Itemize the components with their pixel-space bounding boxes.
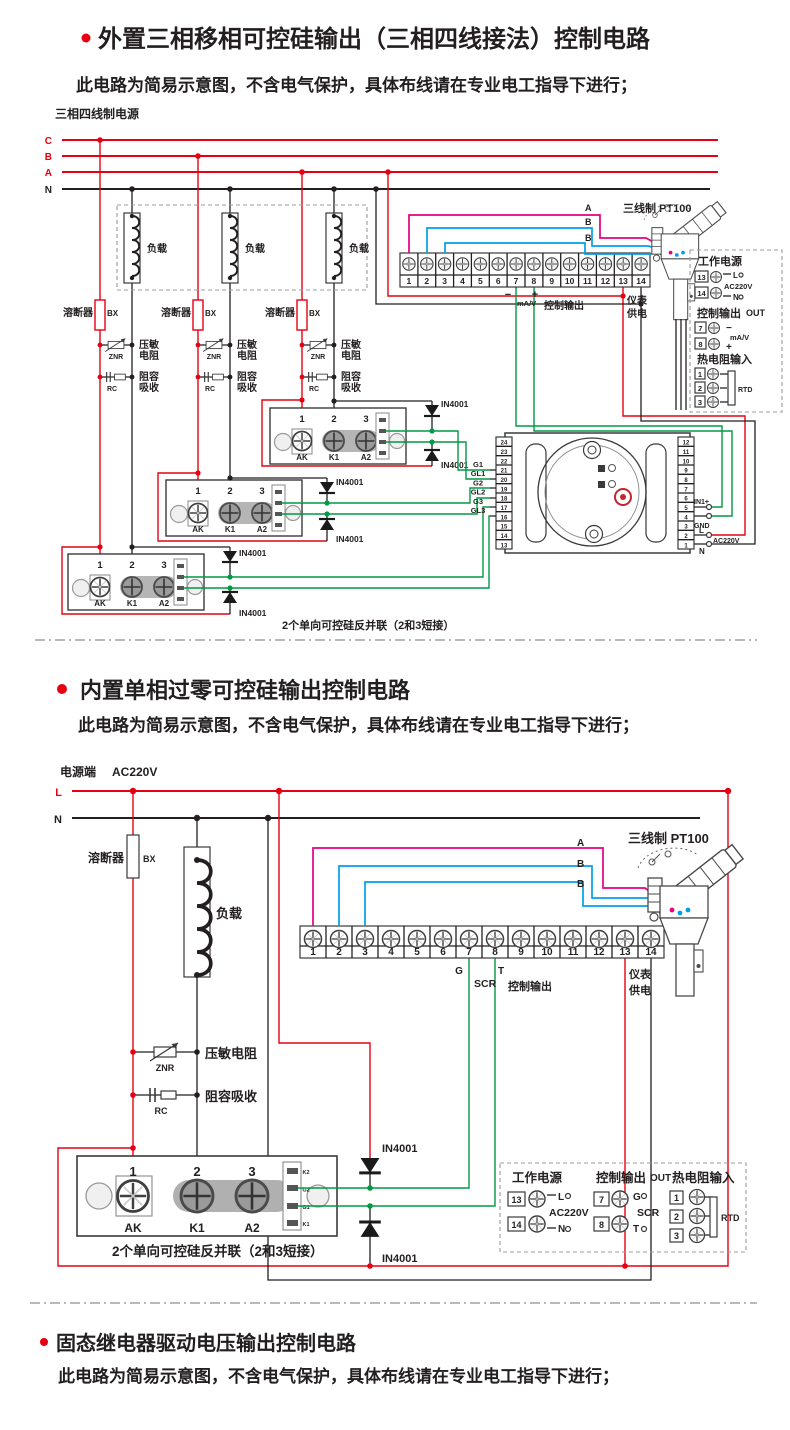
section1-subtitle: 此电路为简易示意图，不含电气保护，具体布线请在专业电工指导下进行；	[76, 75, 637, 95]
s1-rc-3-l1: 阻容	[341, 370, 361, 383]
section2-title: 内置单相过零可控硅输出控制电路	[80, 678, 411, 703]
svg-text:12: 12	[683, 441, 690, 447]
s1-wire-b2-label: B	[585, 233, 592, 243]
s1-rc-2-l2: 吸收	[237, 381, 257, 394]
s2-power-end-label: 电源端	[60, 764, 96, 779]
s2-g-label: G	[455, 966, 463, 977]
s1-terminal-strip: 1234567891011121314 − mA/V + 控制输出 仪表 供电	[400, 253, 650, 320]
s2-rc-code: RC	[155, 1106, 168, 1116]
s1-phase-c-label: C	[45, 136, 52, 147]
s2-panel-l: L	[558, 1192, 564, 1203]
s1-trigger-controller: 242322212019181716151413 121110987654321…	[490, 433, 740, 556]
s2-panel-g: G	[633, 1192, 641, 1203]
s2-panel-power-title: 工作电源	[512, 1170, 563, 1185]
s1-fuse-1-label: 溶断器	[63, 306, 94, 319]
svg-text:4: 4	[460, 276, 465, 286]
s1-panel-n13: 13	[697, 273, 705, 282]
s1-load-3-label: 负载	[349, 242, 369, 255]
s1-load-1-label: 负载	[147, 242, 167, 255]
s2-l-label: L	[55, 787, 62, 799]
s2-mod-num-3: 3	[248, 1164, 255, 1179]
s1-load-3: 负载	[326, 213, 369, 283]
s2-caption: 2个单向可控硅反并联（2和3短接）	[112, 1243, 324, 1259]
svg-text:2: 2	[227, 486, 232, 497]
svg-text:22: 22	[501, 459, 508, 465]
svg-text:11: 11	[568, 947, 579, 958]
section2-bullet-icon	[57, 684, 67, 694]
s1-scr-module-top: 123 AKK1A2	[270, 408, 406, 464]
section3-subtitle: 此电路为简易示意图，不含电气保护，具体布线请在专业电工指导下进行；	[58, 1366, 619, 1386]
s2-znr-label: 压敏电阻	[205, 1046, 257, 1061]
s1-panel-n3: 3	[698, 398, 702, 407]
svg-text:10: 10	[541, 947, 553, 958]
s1-znr-3-code: ZNR	[311, 354, 325, 361]
s1-mod-top-terms: AKK1A2	[296, 453, 371, 462]
s2-meter-label-2: 供电	[628, 983, 651, 997]
s1-fuses: 溶断器 BX 溶断器 BX 溶断器 BX	[63, 300, 321, 330]
svg-text:GL2: GL2	[471, 488, 486, 497]
svg-text:5: 5	[414, 947, 420, 958]
svg-text:17: 17	[501, 506, 508, 512]
s2-rc: RC 阻容吸收	[130, 1088, 258, 1116]
s2-meter-label-1: 仪表	[628, 967, 652, 981]
s2-panel-n3: 3	[674, 1231, 679, 1241]
s2-rc-label: 阻容吸收	[205, 1089, 258, 1104]
s1-panel-n14: 14	[697, 289, 706, 298]
s1-panel-out-title: 控制输出	[697, 306, 741, 320]
s2-legend-panel: 工作电源 13 L AC220V 14 N 控制输出 OUT 7 G SCR 8…	[500, 1163, 746, 1252]
s1-fuse-2-label: 溶断器	[161, 306, 192, 319]
svg-text:3: 3	[363, 414, 368, 425]
svg-text:7: 7	[514, 276, 519, 286]
svg-text:19: 19	[501, 487, 508, 493]
s1-diode-label-3: IN4001	[336, 477, 364, 487]
svg-text:23: 23	[501, 450, 508, 456]
svg-text:18: 18	[501, 497, 508, 503]
svg-text:10: 10	[683, 459, 690, 465]
s1-ctrl-n-label: N	[699, 547, 705, 556]
s1-ctrl-in1-label: IN1+	[694, 499, 709, 506]
svg-text:K1: K1	[329, 453, 340, 462]
s2-panel-n1: 1	[674, 1193, 679, 1203]
svg-text:6: 6	[496, 276, 501, 286]
s2-panel-out-en: OUT	[650, 1173, 671, 1184]
s1-znr-3-l2: 电阻	[341, 349, 361, 362]
s1-znr-2-l1: 压敏	[237, 338, 257, 351]
svg-text:K1: K1	[302, 1222, 309, 1228]
s2-panel-n14: 14	[511, 1220, 521, 1230]
s2-panel-scr: SCR	[637, 1207, 660, 1219]
s1-panel-n: N	[733, 293, 739, 302]
s2-mod-term-a2: A2	[244, 1221, 260, 1235]
s1-snubbers: ZNR 压敏 电阻 RC 阻容 吸收 ZNR 压敏 电阻 RC 阻容 吸收	[98, 338, 361, 394]
svg-text:GL1: GL1	[471, 469, 486, 478]
s1-mod-bot-terms: AKK1A2	[94, 599, 169, 608]
svg-text:14: 14	[636, 276, 646, 286]
s1-rc-1-code: RC	[107, 386, 117, 393]
s1-phase-bus: C B A N	[45, 136, 718, 196]
svg-text:6: 6	[440, 947, 446, 958]
s1-ctrl-ac-label: AC220V	[713, 538, 740, 545]
s2-diode-label-1: IN4001	[382, 1143, 417, 1155]
svg-text:2: 2	[331, 414, 336, 425]
s2-panel-n: N	[558, 1224, 565, 1235]
svg-text:GL3: GL3	[471, 506, 486, 515]
wiring-diagrams: 外置三相移相可控硅输出（三相四线接法）控制电路 此电路为简易示意图，不含电气保护…	[0, 0, 790, 1430]
svg-text:K1: K1	[127, 599, 138, 608]
s2-znr-code: ZNR	[156, 1063, 175, 1073]
svg-text:10: 10	[565, 276, 575, 286]
section1-title: 外置三相移相可控硅输出（三相四线接法）控制电路	[98, 25, 651, 53]
s1-fuse-3-label: 溶断器	[265, 306, 296, 319]
svg-text:4: 4	[388, 947, 394, 958]
s1-fuse-1-code: BX	[107, 309, 119, 318]
s2-mod-term-ak: AK	[124, 1221, 142, 1235]
section2: 内置单相过零可控硅输出控制电路 此电路为简易示意图，不含电气保护，具体布线请在专…	[30, 678, 757, 1303]
s1-znr-1-code: ZNR	[109, 354, 123, 361]
s1-phase-n-label: N	[45, 185, 52, 196]
s1-load-2-label: 负载	[245, 242, 265, 255]
svg-text:20: 20	[501, 478, 508, 484]
svg-text:3: 3	[161, 560, 166, 571]
s2-panel-rtd: RTD	[721, 1213, 740, 1223]
s1-znr-1-l2: 电阻	[139, 349, 159, 362]
s1-meter-label-1: 仪表	[626, 294, 648, 307]
s2-panel-n8: 8	[599, 1220, 604, 1230]
s1-rc-3-l2: 吸收	[341, 381, 361, 394]
s1-indicator-led-2	[609, 481, 616, 488]
svg-text:13: 13	[501, 543, 508, 549]
s2-mod-num-2: 2	[193, 1164, 200, 1179]
svg-text:G2: G2	[473, 478, 483, 487]
s2-mod-term-k1: K1	[189, 1221, 205, 1235]
s2-panel-t: T	[633, 1224, 639, 1235]
s2-panel-n13: 13	[511, 1195, 521, 1205]
s1-panel-plus: +	[726, 342, 732, 353]
s2-fuse-code: BX	[143, 854, 156, 864]
svg-text:13: 13	[618, 276, 628, 286]
svg-text:24: 24	[501, 441, 508, 447]
svg-text:9: 9	[549, 276, 554, 286]
s1-out-label: 控制输出	[544, 299, 584, 312]
svg-text:8: 8	[532, 276, 537, 286]
circuit-manual-page: 外置三相移相可控硅输出（三相四线接法）控制电路 此电路为简易示意图，不含电气保护…	[0, 0, 790, 1430]
s1-meter-label-2: 供电	[626, 307, 647, 320]
section2-subtitle: 此电路为简易示意图，不含电气保护，具体布线请在专业电工指导下进行；	[78, 715, 639, 735]
section3-bullet-icon	[40, 1338, 48, 1346]
svg-text:A2: A2	[361, 453, 372, 462]
s2-scr-label: SCR	[474, 978, 497, 990]
s1-ctrl-l-label: L	[699, 526, 704, 535]
s1-diode-label-1: IN4001	[441, 399, 469, 409]
svg-text:A2: A2	[159, 599, 170, 608]
s1-diode-label-4: IN4001	[336, 534, 364, 544]
section1-bullet-icon	[82, 34, 91, 43]
svg-text:5: 5	[478, 276, 483, 286]
s1-phase-a-label: A	[45, 168, 52, 179]
s1-scr-module-mid: 123 AKK1A2	[166, 480, 302, 536]
s2-diode-label-2: IN4001	[382, 1253, 417, 1265]
s1-wire-a-label: A	[585, 203, 592, 213]
s1-load-1: 负载	[124, 213, 167, 283]
s1-znr-3-l1: 压敏	[341, 338, 361, 351]
s2-panel-n2: 2	[674, 1212, 679, 1222]
svg-text:G1: G1	[473, 460, 483, 469]
svg-text:14: 14	[645, 947, 657, 958]
svg-text:K2: K2	[302, 1170, 309, 1176]
s2-scr-module: 1 2 3 AK K1 A2 K2G2G1K1	[77, 1156, 337, 1236]
s1-caption: 2个单向可控硅反并联（2和3短接）	[282, 618, 454, 632]
svg-text:K1: K1	[225, 525, 236, 534]
svg-text:7: 7	[466, 947, 472, 958]
s2-wire-b2-label: B	[577, 879, 584, 890]
s1-fuse-2-code: BX	[205, 309, 217, 318]
svg-text:11: 11	[583, 276, 592, 286]
s2-fuse-label: 溶断器	[88, 850, 125, 865]
s1-panel-rtd: RTD	[738, 387, 752, 394]
s1-znr-rc-1: ZNR 压敏 电阻 RC 阻容 吸收	[98, 338, 159, 394]
section1: 外置三相移相可控硅输出（三相四线接法）控制电路 此电路为简易示意图，不含电气保护…	[35, 25, 782, 640]
s1-load-2: 负载	[222, 213, 265, 283]
s1-scr-module-bottom: 123 AKK1A2	[68, 554, 204, 610]
s2-panel-ac: AC220V	[549, 1207, 589, 1219]
svg-text:3: 3	[259, 486, 264, 497]
s1-fuse-3-code: BX	[309, 309, 321, 318]
s1-panel-n7: 7	[698, 324, 702, 333]
s1-out-minus: −	[505, 289, 511, 301]
s2-power-ac-label: AC220V	[112, 765, 157, 779]
s1-znr-rc-2: ZNR 压敏 电阻 RC 阻容 吸收	[196, 338, 257, 394]
s2-power-lines: L N	[54, 787, 728, 826]
s1-panel-ac: AC220V	[724, 282, 752, 291]
section3-title: 固态继电器驱动电压输出控制电路	[56, 1331, 357, 1355]
s2-fuse: 溶断器 BX	[88, 835, 156, 878]
s1-znr-2-code: ZNR	[207, 354, 221, 361]
s2-sensor-wires: A B B	[313, 838, 682, 926]
svg-text:1: 1	[299, 414, 305, 425]
svg-text:14: 14	[501, 534, 508, 540]
s2-n-label: N	[54, 814, 62, 826]
s1-panel-mav: mA/V	[730, 333, 749, 342]
s1-znr-rc-3: ZNR 压敏 电阻 RC 阻容 吸收	[300, 338, 361, 394]
s2-wire-b1-label: B	[577, 859, 584, 870]
s1-rc-2-l1: 阻容	[237, 370, 257, 383]
svg-text:12: 12	[593, 947, 605, 958]
s2-panel-rtd-title: 热电阻输入	[672, 1170, 735, 1185]
s1-rc-2-code: RC	[205, 386, 215, 393]
s2-pt100-title: 三线制 PT100	[628, 831, 709, 846]
svg-text:A2: A2	[257, 525, 268, 534]
s1-indicator-glyph-2	[598, 481, 605, 488]
s1-diode-label-2: IN4001	[441, 460, 469, 470]
svg-text:AK: AK	[94, 599, 106, 608]
svg-text:13: 13	[619, 947, 631, 958]
svg-text:9: 9	[518, 947, 524, 958]
s1-wire-b1-label: B	[585, 217, 592, 227]
svg-text:16: 16	[501, 515, 508, 521]
svg-text:1: 1	[195, 486, 201, 497]
s2-panel-n7: 7	[599, 1195, 604, 1205]
s1-mod-mid-terms: AKK1A2	[192, 525, 267, 534]
s1-panel-n2: 2	[698, 384, 702, 393]
s2-panel-out-title: 控制输出	[596, 1170, 646, 1185]
svg-text:3: 3	[362, 947, 368, 958]
s1-panel-rtd-title: 热电阻输入	[697, 352, 752, 366]
section3: 固态继电器驱动电压输出控制电路 此电路为简易示意图，不含电气保护，具体布线请在专…	[40, 1331, 619, 1386]
s1-diode-label-5: IN4001	[239, 548, 267, 558]
svg-text:3: 3	[442, 276, 447, 286]
s1-power-source-label: 三相四线制电源	[55, 106, 139, 121]
s2-wire-a-label: A	[577, 838, 584, 849]
s1-znr-1-l1: 压敏	[139, 338, 159, 351]
s2-t-label: T	[498, 966, 504, 977]
svg-text:2: 2	[129, 560, 134, 571]
svg-text:2: 2	[336, 947, 342, 958]
svg-text:15: 15	[501, 525, 508, 531]
s2-terminal-strip: 1234567891011121314 G SCR T 控制输出 仪表 供电	[300, 926, 664, 997]
svg-text:AK: AK	[296, 453, 308, 462]
s1-rc-1-l2: 吸收	[139, 381, 159, 394]
s1-out-plus: +	[532, 289, 538, 301]
s1-phase-b-label: B	[45, 152, 52, 163]
s1-gate-wire-labels: G1GL1G2GL2G3GL3	[471, 460, 486, 515]
s2-load: 负载	[184, 847, 242, 978]
s1-panel-n1: 1	[698, 370, 702, 379]
svg-text:2: 2	[424, 276, 429, 286]
svg-text:1: 1	[407, 276, 412, 286]
svg-text:G3: G3	[473, 497, 483, 506]
s1-load-bank: 负载 负载 负载	[117, 205, 369, 290]
svg-text:11: 11	[683, 450, 690, 456]
s1-panel-out-en: OUT	[746, 308, 766, 318]
svg-text:1: 1	[310, 947, 316, 958]
s2-diodes: IN4001 IN4001	[359, 1143, 417, 1265]
s1-panel-l: L	[733, 271, 738, 280]
svg-text:AK: AK	[192, 525, 204, 534]
s2-load-label: 负载	[216, 906, 242, 921]
svg-text:1: 1	[97, 560, 103, 571]
s2-znr: ZNR 压敏电阻	[130, 1043, 257, 1073]
svg-text:8: 8	[492, 947, 498, 958]
svg-text:21: 21	[501, 469, 508, 475]
s2-out-label: 控制输出	[508, 979, 552, 993]
s1-indicator-led-1	[609, 465, 616, 472]
s1-diode-label-6: IN4001	[239, 608, 267, 618]
s2-mod-num-1: 1	[129, 1164, 136, 1179]
s1-panel-power-title: 工作电源	[698, 254, 742, 268]
s1-rc-3-code: RC	[309, 386, 319, 393]
s1-rc-1-l1: 阻容	[139, 370, 159, 383]
s1-legend-panel: 工作电源 13 L AC220V 14 N 控制输出 OUT 7 − mA/V …	[690, 250, 782, 412]
svg-text:12: 12	[601, 276, 611, 286]
s1-indicator-glyph-1	[598, 465, 605, 472]
s1-znr-2-l2: 电阻	[237, 349, 257, 362]
s1-panel-n8: 8	[698, 340, 702, 349]
